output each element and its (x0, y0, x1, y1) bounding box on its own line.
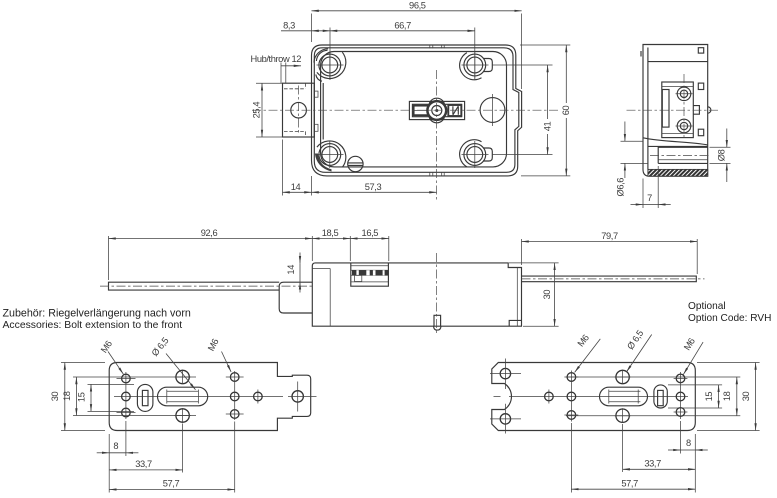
svg-text:79,7: 79,7 (601, 231, 618, 241)
svg-text:7: 7 (647, 193, 652, 203)
svg-text:15: 15 (704, 392, 714, 402)
svg-text:18,5: 18,5 (322, 228, 339, 238)
svg-text:Optional: Optional (688, 301, 726, 312)
svg-text:92,6: 92,6 (201, 228, 218, 238)
svg-text:14: 14 (291, 182, 301, 192)
svg-text:96,5: 96,5 (409, 1, 426, 11)
svg-text:60: 60 (561, 106, 571, 116)
svg-text:Accessories: Bolt extension to: Accessories: Bolt extension to the front (3, 320, 183, 331)
svg-text:41: 41 (542, 122, 552, 132)
svg-text:57,3: 57,3 (365, 182, 382, 192)
svg-text:33,7: 33,7 (135, 459, 152, 469)
svg-text:Hub/throw 12: Hub/throw 12 (251, 54, 302, 64)
svg-text:25,4: 25,4 (251, 102, 261, 119)
svg-text:8: 8 (686, 438, 691, 448)
svg-text:8,3: 8,3 (283, 20, 295, 30)
svg-text:30: 30 (542, 290, 552, 300)
svg-text:57,7: 57,7 (163, 479, 180, 489)
svg-text:8: 8 (113, 441, 118, 451)
svg-text:Ø6,6: Ø6,6 (615, 178, 625, 197)
svg-text:66,7: 66,7 (394, 20, 411, 30)
svg-text:16,5: 16,5 (362, 228, 379, 238)
svg-text:Ø8: Ø8 (716, 149, 726, 161)
svg-text:Zubehör: Riegelverlängerung na: Zubehör: Riegelverlängerung nach vorn (3, 308, 191, 320)
svg-text:14: 14 (286, 265, 296, 275)
svg-text:30: 30 (741, 392, 751, 402)
svg-text:18: 18 (62, 391, 72, 401)
svg-text:33,7: 33,7 (644, 458, 661, 468)
svg-text:30: 30 (50, 392, 60, 402)
svg-text:15: 15 (76, 392, 86, 402)
svg-text:18: 18 (722, 391, 732, 401)
svg-text:57,7: 57,7 (621, 478, 638, 488)
svg-text:Option Code: RVH: Option Code: RVH (688, 313, 771, 324)
